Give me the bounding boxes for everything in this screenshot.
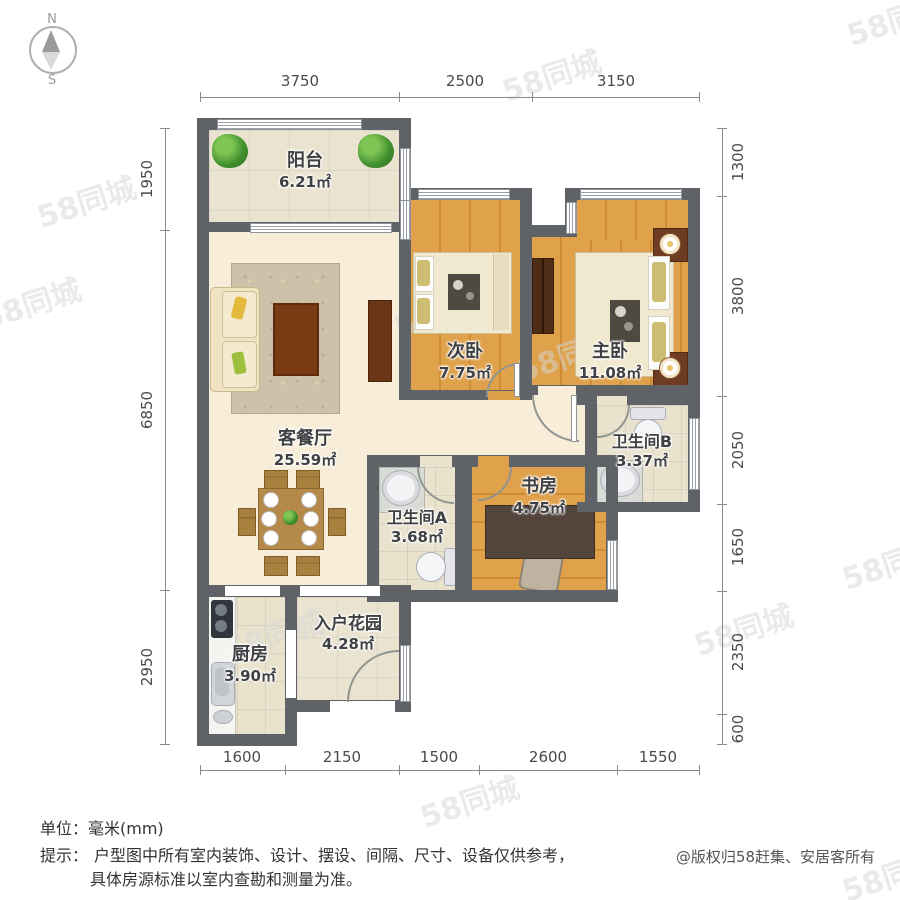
bed-foot — [493, 254, 509, 330]
dim-right-3: 2050 — [728, 420, 748, 480]
room-area: 3.68㎡ — [352, 528, 482, 547]
bed-tray — [610, 300, 640, 342]
dim-bottom-2: 2150 — [323, 748, 361, 766]
dining-chair — [264, 470, 288, 490]
window — [607, 540, 618, 590]
sliding-door-window — [250, 223, 392, 233]
room-area: 11.08㎡ — [545, 364, 675, 383]
room-area: 6.21㎡ — [240, 173, 370, 192]
tick — [532, 92, 533, 102]
tick — [717, 396, 727, 397]
tick — [399, 92, 400, 102]
dim-left-1: 1950 — [137, 149, 157, 209]
tip-text1: 户型图中所有室内装饰、设计、摆设、间隔、尺寸、设备仅供参考， — [94, 846, 574, 865]
room-name: 次卧 — [400, 341, 530, 364]
room-name: 客餐厅 — [240, 428, 370, 451]
doorway — [478, 456, 509, 467]
watermark: 58同城 — [414, 763, 524, 836]
tip-line1: 提示：户型图中所有室内装饰、设计、摆设、间隔、尺寸、设备仅供参考， — [40, 842, 574, 866]
tray-dish — [615, 306, 626, 317]
watermark: 58同城 — [836, 525, 900, 598]
tick — [200, 765, 201, 775]
tick — [699, 765, 700, 775]
tick — [160, 128, 170, 129]
compass-needle-north — [42, 30, 60, 52]
dimension-line-right — [722, 128, 723, 745]
lamp-icon — [660, 234, 680, 254]
tv-cabinet — [368, 300, 392, 382]
tip-line2: 具体房源标准以室内查勘和测量为准。 — [90, 866, 362, 890]
tick — [160, 744, 170, 745]
doorway — [420, 456, 452, 467]
compass-north-label: N — [22, 12, 82, 27]
sink — [382, 470, 420, 506]
dimension-line-bottom — [200, 770, 700, 771]
tray-dish — [466, 292, 474, 300]
tick — [717, 504, 727, 505]
dining-chair — [296, 556, 320, 576]
burner — [215, 620, 227, 632]
room-name: 阳台 — [240, 150, 370, 173]
watermark: 58同城 — [0, 265, 86, 338]
watermark: 58同城 — [841, 0, 900, 55]
plate — [263, 530, 279, 546]
compass-icon: N S — [22, 12, 82, 88]
dim-bottom-1: 1600 — [223, 748, 261, 766]
room-name: 卫生间B — [577, 432, 707, 452]
room-label-bathA: 卫生间A 3.68㎡ — [352, 508, 482, 547]
entrance-doorway — [330, 701, 395, 712]
plate — [261, 511, 277, 527]
table-plant-icon — [283, 510, 298, 525]
dim-left-3: 2950 — [137, 637, 157, 697]
tick — [285, 765, 286, 775]
dim-top-2: 2500 — [446, 72, 484, 90]
unit-note: 单位：毫米(mm) — [40, 815, 164, 839]
doorway — [597, 396, 627, 405]
tick — [717, 591, 727, 592]
tray-dish — [453, 280, 463, 290]
doorway — [300, 586, 380, 596]
window — [217, 119, 362, 130]
faucet — [213, 710, 233, 724]
floorplan-canvas: 58同城 58同城 58同城 58同城 58同城 58同城 58同城 58同城 … — [0, 0, 900, 900]
copyright-note: @版权归58赶集、安居客所有 — [676, 846, 875, 867]
room-name: 主卧 — [545, 341, 675, 364]
plate — [301, 492, 317, 508]
tick — [200, 92, 201, 102]
room-label-study: 书房 4.75㎡ — [474, 476, 604, 517]
watermark: 58同城 — [496, 37, 606, 110]
tick — [399, 765, 400, 775]
window — [418, 189, 510, 200]
dim-top-1: 3750 — [281, 72, 319, 90]
doorway — [225, 586, 280, 596]
room-area: 7.75㎡ — [400, 364, 530, 383]
dim-right-5: 2350 — [728, 622, 748, 682]
dimension-line-left — [165, 128, 166, 745]
room-label-bathB: 卫生间B 3.37㎡ — [577, 432, 707, 471]
burner — [215, 604, 227, 616]
plate — [303, 511, 319, 527]
coffee-table — [273, 303, 319, 376]
compass-south-label: S — [22, 73, 82, 88]
room-area: 3.37㎡ — [577, 452, 707, 471]
room-name: 卫生间A — [352, 508, 482, 528]
dim-left-2: 6850 — [137, 380, 157, 440]
tick — [699, 92, 700, 102]
room-label-garden: 入户花园 4.28㎡ — [283, 614, 413, 654]
dim-right-4: 1650 — [728, 517, 748, 577]
bed-tray — [448, 274, 480, 310]
pillow — [652, 262, 666, 302]
room-name: 书房 — [474, 476, 604, 499]
dining-chair — [328, 508, 346, 536]
room-name: 入户花园 — [283, 614, 413, 635]
compass-needle-south — [42, 52, 60, 70]
window — [400, 200, 411, 240]
tick — [160, 590, 170, 591]
room-area: 4.75㎡ — [474, 499, 604, 518]
window — [580, 189, 682, 200]
watermark: 58同城 — [31, 163, 141, 236]
tick — [160, 230, 170, 231]
tick — [717, 128, 727, 129]
room-label-master: 主卧 11.08㎡ — [545, 341, 675, 382]
room-label-living: 客餐厅 25.59㎡ — [240, 428, 370, 469]
tick — [479, 765, 480, 775]
dim-bottom-5: 1550 — [639, 748, 677, 766]
dimension-line-top — [200, 97, 700, 98]
wall — [197, 734, 297, 746]
tick — [717, 744, 727, 745]
room-label-bedroom2: 次卧 7.75㎡ — [400, 341, 530, 382]
dim-right-2: 3800 — [728, 266, 748, 326]
dining-chair — [238, 508, 256, 536]
room-area: 3.90㎡ — [185, 667, 315, 686]
tick — [717, 196, 727, 197]
plate — [263, 492, 279, 508]
tick — [617, 765, 618, 775]
plate — [301, 530, 317, 546]
room-area: 25.59㎡ — [240, 451, 370, 470]
dim-bottom-4: 2600 — [529, 748, 567, 766]
tick — [717, 714, 727, 715]
dim-bottom-3: 1500 — [420, 748, 458, 766]
toilet — [416, 552, 446, 582]
dim-right-1: 1300 — [728, 132, 748, 192]
wardrobe — [532, 258, 554, 334]
doorway — [538, 386, 576, 395]
pillow — [417, 260, 430, 286]
pillow — [417, 298, 430, 324]
tray-dish — [624, 322, 633, 331]
tip-label: 提示： — [40, 846, 88, 865]
dining-chair — [296, 470, 320, 490]
dim-right-6: 600 — [728, 699, 748, 759]
room-area: 4.28㎡ — [283, 635, 413, 654]
dim-top-3: 3150 — [597, 72, 635, 90]
window — [566, 202, 577, 234]
room-label-balcony: 阳台 6.21㎡ — [240, 150, 370, 191]
dining-chair — [264, 556, 288, 576]
